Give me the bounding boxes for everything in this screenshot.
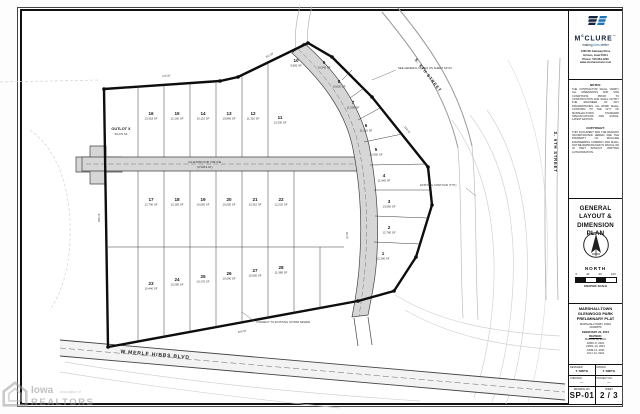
scale-tick-labels: 0 30 60 120 — [576, 272, 616, 276]
plat-sheet: 112,390 SF212,780 SF313,060 SF411,640 SF… — [0, 0, 640, 414]
scale-tick: 60 — [599, 272, 602, 276]
lot-area: 11,640 SF — [378, 179, 391, 183]
lot-number: 18 — [174, 197, 180, 202]
lot-number: 3 — [388, 199, 391, 204]
lot-area: 13,318 SF — [145, 117, 158, 121]
lot-number: 11 — [278, 115, 283, 120]
lot-area: 12,150 SF — [171, 117, 184, 121]
north-arrow-icon — [581, 231, 611, 261]
realtors-house-icon — [2, 381, 28, 407]
notes-section: NOTES: THE CONTRACTOR SHALL VERIFY ALL D… — [569, 79, 622, 196]
lot-area: 11,000 SF — [347, 106, 360, 110]
dim-label: 60.00' — [345, 232, 349, 240]
copyright-heading: COPYRIGHT: — [572, 126, 619, 130]
lot-area: 10,820 SF — [333, 85, 346, 89]
credits-grid: DESIGNED: T. SMITH DRAWN: T. SMITH CHECK… — [569, 364, 622, 387]
lot-number: 6 — [365, 123, 368, 128]
lot-number: 9 — [323, 60, 326, 65]
mcclure-address: 1360 SE Gateway Drive Grimes, Iowa 50111… — [569, 50, 622, 65]
lot-area: 12,780 SF — [383, 231, 396, 235]
graphic-scale-section: 0 30 60 120 GRAPHIC SCALE — [569, 269, 622, 303]
scale-bar — [575, 277, 617, 283]
lot-area: 13,060 SF — [383, 205, 396, 209]
lot-number: 21 — [252, 197, 258, 202]
lot-number: 17 — [148, 197, 154, 202]
lot-area: 10,650 SF — [249, 274, 262, 278]
lot-area: 11,210 SF — [360, 129, 373, 133]
callout-c: EXISTING CONTOUR (TYP.) — [420, 183, 456, 187]
lot-number: 12 — [250, 111, 256, 116]
title-block: McCLURE™ making lives better 1360 SE Gat… — [568, 11, 622, 404]
mcclure-tagline: making lives better — [569, 43, 622, 47]
callout-a: SEE GENERAL NOTES ON SHEET SP-03 — [398, 66, 452, 70]
mcclure-logo-icon — [583, 16, 609, 27]
lot-area: 9,980 SF — [290, 64, 302, 68]
copyright-body: THIS DOCUMENT AND THE DESIGNS INCORPORAT… — [572, 131, 619, 155]
watermark-iowa: Iowa — [31, 385, 53, 396]
lot-number: 20 — [226, 197, 232, 202]
street-label-sixth-right: S. 6TH STREET — [553, 131, 558, 172]
scale-caption: GRAPHIC SCALE — [569, 284, 622, 288]
lot-number: 5 — [375, 147, 378, 152]
lot-number: 22 — [278, 197, 284, 202]
lot-number: 23 — [148, 281, 154, 286]
lot-number: 4 — [383, 173, 386, 178]
lot-area: 10,540 SF — [318, 66, 331, 70]
project-number: 20190876 — [569, 326, 622, 329]
lot-number: 14 — [200, 111, 206, 116]
lot-area: 10,860 SF — [223, 117, 236, 121]
designed-value: T. SMITH — [570, 369, 594, 373]
north-arrow-section: NORTH — [569, 231, 622, 269]
lot-area: 10,440 SF — [145, 287, 158, 291]
lot-number: 27 — [252, 268, 258, 273]
lot-area: 10,000 SF — [223, 203, 236, 207]
lot-number: 16 — [148, 111, 154, 116]
lot-area: 10,090 SF — [223, 277, 236, 281]
drawn-value: T. SMITH — [597, 369, 622, 373]
iowa-realtors-watermark: Iowa Association of REALTORS — [2, 374, 102, 414]
dim-label: 264.15' — [97, 213, 101, 222]
address-line: www.mcclurevision.com — [569, 61, 622, 65]
notes-body: THE CONTRACTOR SHALL VERIFY ALL DIMENSIO… — [572, 88, 619, 122]
sheet-number-section: DRAWING NO. SP-01 SHEET 2 / 3 — [569, 387, 622, 404]
lot-area: 11,310 SF — [247, 117, 260, 121]
drawn-cell: DRAWN: T. SMITH — [596, 365, 623, 376]
mcclure-logo-block: McCLURE™ making lives better 1360 SE Gat… — [569, 11, 622, 79]
project-doc: PRELIMINARY PLAT — [569, 316, 622, 321]
plan-title-section: GENERAL LAYOUT & DIMENSION PLAN — [569, 198, 622, 231]
lot-area: 12,790 SF — [145, 203, 158, 207]
lot-area: 10,110 SF — [197, 117, 210, 121]
drawing-no-value: SP-01 — [569, 391, 595, 400]
lot-area: 12,220 SF — [275, 203, 288, 207]
lot-number: 15 — [174, 111, 180, 116]
lot-number: 19 — [200, 197, 206, 202]
lot-number: 7 — [352, 100, 355, 105]
designed-cell: DESIGNED: T. SMITH — [569, 365, 596, 376]
lot-number: 8 — [338, 79, 341, 84]
mcclure-wordmark: McCLURE™ — [569, 33, 622, 42]
plan-title-line1: GENERAL LAYOUT & — [569, 205, 622, 222]
street-label-center-name: GLENWOOD DRIVE — [189, 160, 222, 164]
lot-area: 10,060 SF — [197, 203, 210, 207]
watermark-association: Association of — [60, 390, 81, 394]
lot-area: 12,060 SF — [370, 153, 383, 157]
project-no-cell: PROJECT NO: — — [596, 376, 623, 387]
checked-cell: CHECKED: — — [569, 376, 596, 387]
lot-number: 13 — [226, 111, 232, 116]
sheet-count-cell: SHEET 2 / 3 — [596, 387, 622, 404]
lot-area: 10,170 SF — [197, 280, 210, 284]
callout-b: CONNECT TO EXISTING STORM SEWER — [256, 320, 310, 324]
outlot-label: OUTLOT X — [111, 127, 131, 131]
lot-number: 25 — [200, 274, 206, 279]
watermark-realtors: REALTORS — [31, 398, 94, 408]
scale-tick: 0 — [576, 272, 578, 276]
outlot-area: 36,270 SF — [115, 132, 128, 136]
lot-number: 26 — [226, 271, 232, 276]
checked-value: — — [570, 380, 594, 384]
project-no-value: — — [597, 380, 622, 384]
scale-tick: 30 — [586, 272, 589, 276]
scale-tick: 120 — [611, 272, 616, 276]
lot-area: 10,310 SF — [249, 203, 262, 207]
lot-number: 10 — [293, 58, 299, 63]
sheet-count-value: 2 / 3 — [596, 391, 622, 400]
revision-date: JULY 12, 2021 — [569, 352, 622, 355]
lot-area: 10,280 SF — [171, 283, 184, 287]
lot-number: 28 — [278, 265, 284, 270]
lot-area: 11,980 SF — [275, 271, 288, 275]
project-date: FEBRUARY 24, 2021 — [569, 330, 622, 334]
notes-heading: NOTES: — [572, 83, 619, 87]
lot-number: 24 — [174, 277, 180, 282]
street-label-center-sub: (PUBLIC) — [197, 165, 213, 169]
lot-area: 10,150 SF — [171, 203, 184, 207]
project-info-section: MARSHALLTOWN GLENWOOD PARK PRELIMINARY P… — [569, 303, 622, 364]
site-plan-drawing: 112,390 SF212,780 SF313,060 SF411,640 SF… — [0, 0, 640, 414]
lot-number: 2 — [388, 225, 391, 230]
lot-area: 12,390 SF — [377, 257, 390, 261]
dim-label: 125.00' — [162, 73, 171, 78]
lot-area: 13,330 SF — [274, 121, 287, 125]
drawing-no-cell: DRAWING NO. SP-01 — [569, 387, 596, 404]
lot-number: 1 — [382, 251, 385, 256]
